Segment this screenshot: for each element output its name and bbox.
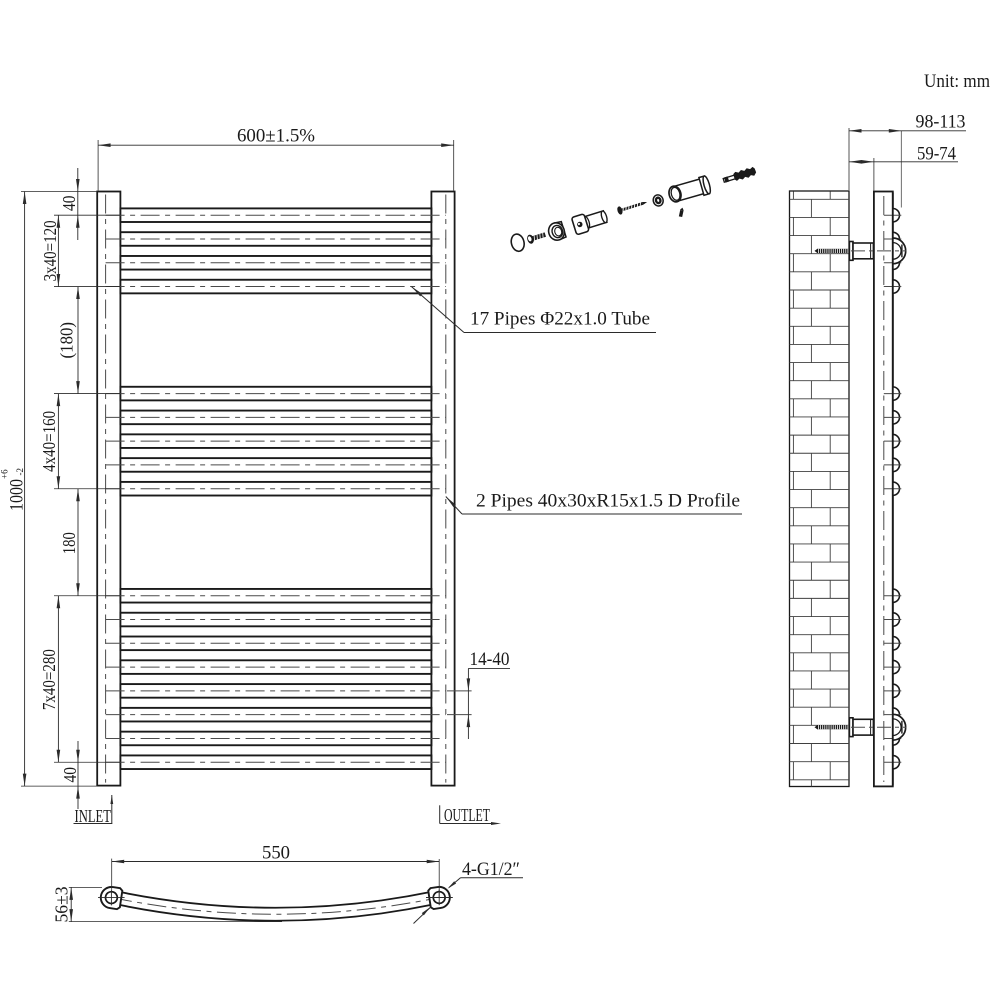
svg-text:OUTLET: OUTLET [444,805,490,825]
svg-text:(180): (180) [57,322,78,359]
svg-text:-2: -2 [15,468,25,476]
svg-text:1000: 1000 [8,479,28,511]
svg-text:4-G1/2″: 4-G1/2″ [462,860,520,880]
svg-text:98-113: 98-113 [916,112,966,132]
svg-text:Unit: mm: Unit: mm [924,72,991,92]
svg-text:40: 40 [60,767,80,783]
svg-text:+6: +6 [0,469,10,479]
svg-text:600±1.5%: 600±1.5% [237,126,315,146]
svg-text:2 Pipes 40x30xR15x1.5 D Profil: 2 Pipes 40x30xR15x1.5 D Profile [476,491,740,511]
svg-text:59-74: 59-74 [917,144,956,164]
svg-text:17 Pipes Φ22x1.0 Tube: 17 Pipes Φ22x1.0 Tube [470,309,650,329]
svg-text:3x40=120: 3x40=120 [40,220,60,281]
svg-text:56±3: 56±3 [52,887,72,923]
svg-text:14-40: 14-40 [470,650,510,670]
svg-text:550: 550 [262,843,290,863]
svg-text:180: 180 [59,532,79,554]
svg-text:40: 40 [59,196,79,212]
svg-text:4x40=160: 4x40=160 [39,411,59,472]
svg-text:7x40=280: 7x40=280 [39,649,59,710]
